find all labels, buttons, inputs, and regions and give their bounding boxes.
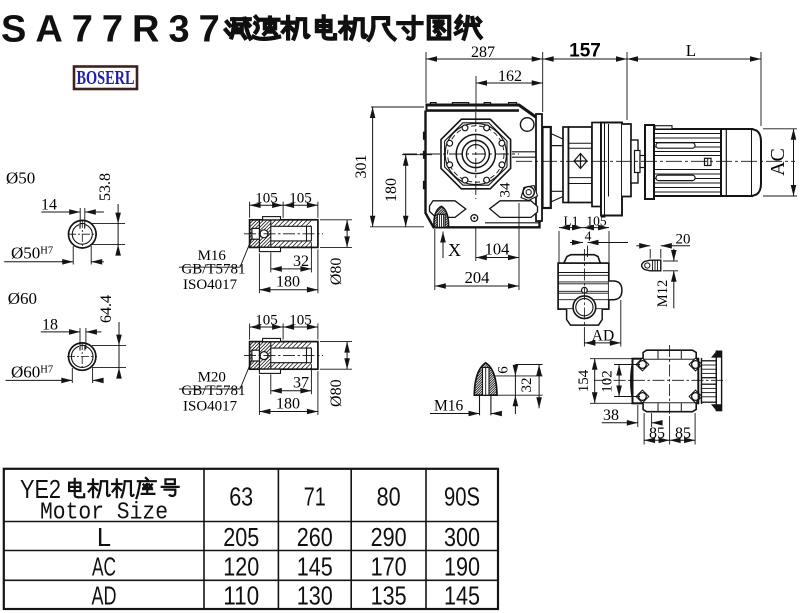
svg-text:ISO4017: ISO4017 xyxy=(183,399,238,415)
svg-text:105: 105 xyxy=(255,191,278,207)
svg-text:4: 4 xyxy=(585,229,592,244)
svg-text:102: 102 xyxy=(600,370,616,393)
svg-text:L: L xyxy=(686,41,696,60)
svg-text:M12: M12 xyxy=(655,280,671,307)
svg-text:X: X xyxy=(448,240,461,260)
svg-text:37: 37 xyxy=(293,375,309,392)
svg-text:260: 260 xyxy=(297,524,333,552)
svg-text:63: 63 xyxy=(229,484,253,512)
svg-text:170: 170 xyxy=(371,554,407,582)
svg-text:20: 20 xyxy=(676,232,691,248)
svg-text:Ø60: Ø60 xyxy=(8,289,37,308)
svg-text:80: 80 xyxy=(377,484,401,512)
svg-text:105: 105 xyxy=(289,191,312,207)
svg-text:SA77R37: SA77R37 xyxy=(1,9,229,51)
svg-text:85: 85 xyxy=(675,425,691,442)
svg-text:GB/T5781: GB/T5781 xyxy=(181,261,245,277)
svg-text:104: 104 xyxy=(485,240,510,259)
svg-text:287: 287 xyxy=(471,44,495,61)
svg-text:157: 157 xyxy=(569,41,601,62)
svg-text:105: 105 xyxy=(289,312,312,328)
svg-text:145: 145 xyxy=(297,554,333,582)
svg-text:6: 6 xyxy=(496,366,512,374)
svg-text:AD: AD xyxy=(92,583,117,611)
svg-text:105: 105 xyxy=(255,312,278,328)
svg-text:105: 105 xyxy=(586,214,607,229)
svg-text:290: 290 xyxy=(371,524,407,552)
svg-text:L: L xyxy=(97,524,111,552)
svg-text:Motor Size: Motor Size xyxy=(40,500,168,527)
svg-text:18: 18 xyxy=(42,317,58,334)
svg-text:L1: L1 xyxy=(564,214,579,229)
svg-text:32: 32 xyxy=(519,378,535,393)
svg-text:AC: AC xyxy=(92,554,116,582)
svg-text:110: 110 xyxy=(223,583,259,611)
svg-text:162: 162 xyxy=(498,68,522,85)
svg-text:180: 180 xyxy=(276,396,300,413)
svg-text:205: 205 xyxy=(223,524,259,552)
svg-text:90S: 90S xyxy=(444,484,480,512)
svg-text:BOSERL: BOSERL xyxy=(77,67,135,89)
svg-text:145: 145 xyxy=(444,583,480,611)
svg-text:190: 190 xyxy=(444,554,480,582)
svg-text:130: 130 xyxy=(297,583,333,611)
svg-text:180: 180 xyxy=(383,178,400,202)
svg-text:32: 32 xyxy=(293,253,309,270)
svg-text:71: 71 xyxy=(304,484,326,512)
svg-text:85: 85 xyxy=(649,425,665,442)
svg-text:301: 301 xyxy=(353,155,370,179)
svg-text:Ø50: Ø50 xyxy=(6,169,35,188)
svg-text:ISO4017: ISO4017 xyxy=(183,277,238,293)
svg-text:Ø80: Ø80 xyxy=(328,258,345,286)
svg-text:AC: AC xyxy=(767,148,789,176)
svg-text:M16: M16 xyxy=(434,398,464,415)
svg-text:154: 154 xyxy=(576,369,592,392)
svg-text:300: 300 xyxy=(444,524,480,552)
svg-text:AD: AD xyxy=(592,327,614,344)
svg-text:Ø80: Ø80 xyxy=(328,379,345,407)
svg-text:204: 204 xyxy=(465,268,490,287)
svg-text:34: 34 xyxy=(498,182,514,198)
svg-text:120: 120 xyxy=(223,554,259,582)
svg-text:135: 135 xyxy=(371,583,407,611)
svg-text:GB/T5781: GB/T5781 xyxy=(181,383,245,399)
svg-text:180: 180 xyxy=(276,274,300,291)
svg-text:38: 38 xyxy=(603,407,619,424)
svg-text:64.4: 64.4 xyxy=(98,295,115,323)
svg-text:53.8: 53.8 xyxy=(97,173,114,201)
svg-text:14: 14 xyxy=(41,197,57,214)
